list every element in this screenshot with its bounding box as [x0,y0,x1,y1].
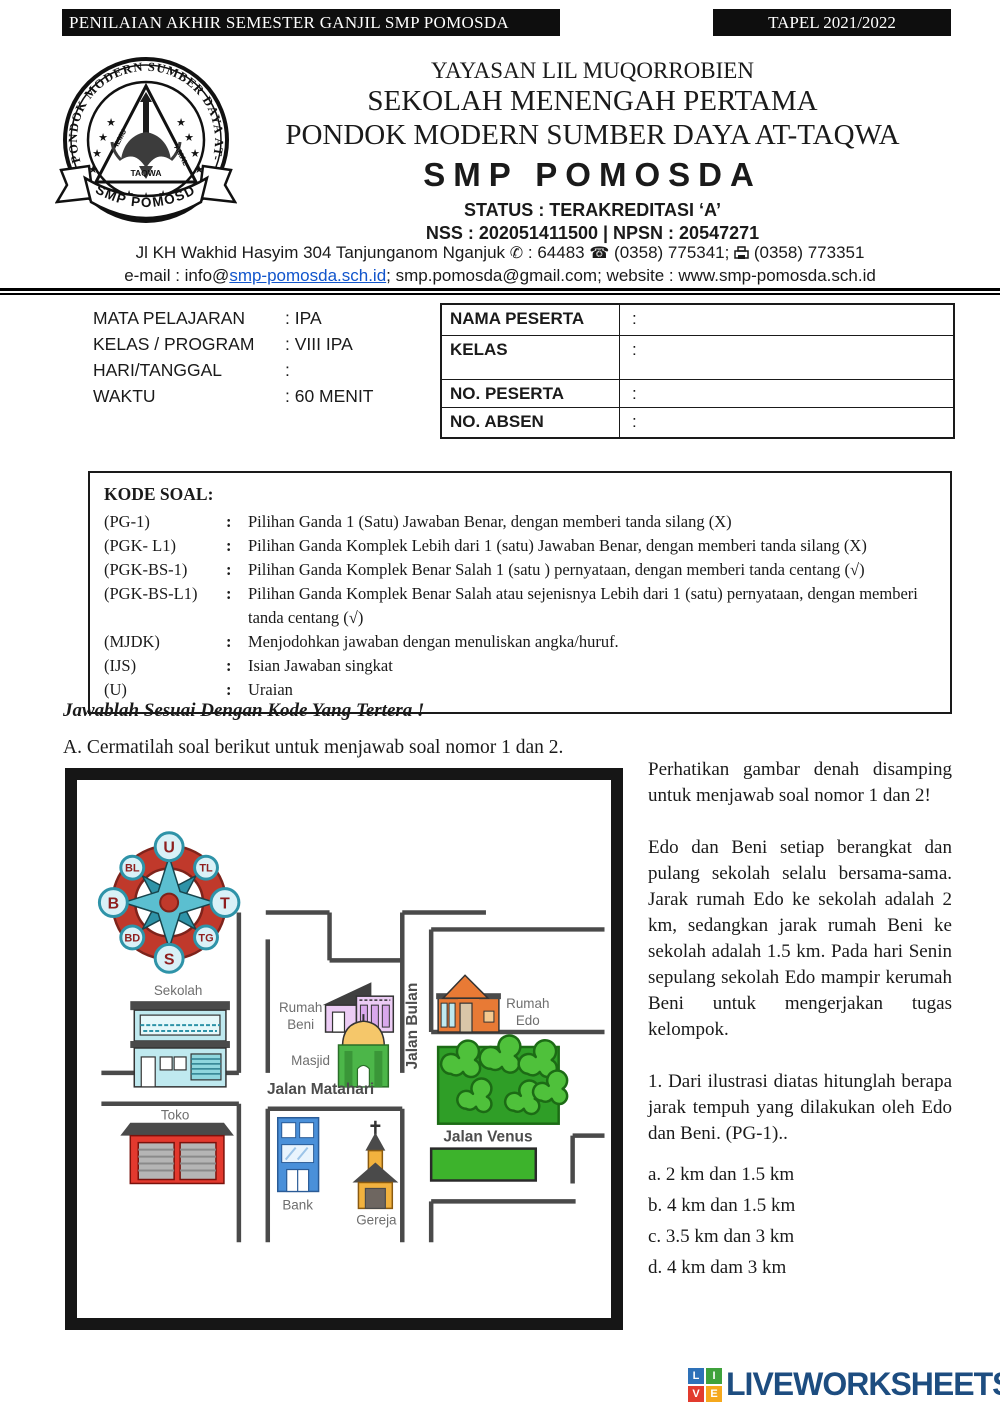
compass-rose-icon: U S B T BL TL BD TG [99,833,238,972]
compass-sw-label: BD [124,932,140,944]
compass-east-label: T [220,896,230,913]
school-year: TAPEL 2021/2022 [768,13,896,33]
bank-label: Bank [282,1197,313,1212]
option-c[interactable]: c. 3.5 km dan 3 km [648,1221,952,1252]
question-1: 1. Dari ilustrasi diatas hitunglah berap… [648,1069,952,1147]
option-b[interactable]: b. 4 km dan 1.5 km [648,1190,952,1221]
field-icon [431,1149,536,1181]
pondok-name: PONDOK MODERN SUMBER DAYA AT-TAQWA [235,118,950,153]
kode-soal-box: KODE SOAL: (PG-1):Pilihan Ganda 1 (Satu)… [88,471,952,714]
compass-nw-label: BL [125,863,140,875]
address-block: Jl KH Wakhid Hasyim 304 Tanjunganom Ngan… [0,241,1000,287]
shop-icon [120,1123,234,1184]
answer-instruction: Jawablah Sesuai Dengan Kode Yang Tertera… [63,700,424,722]
option-a[interactable]: a. 2 km dan 1.5 km [648,1159,952,1190]
jalan-matahari-label: Jalan Matahari [267,1081,374,1098]
letterhead-divider [0,288,1000,295]
kode-row: (PGK-BS-L1):Pilihan Ganda Komplek Benar … [104,582,936,630]
svg-text:★: ★ [176,117,186,129]
compass-west-label: B [108,896,120,913]
compass-north-label: U [163,840,175,857]
field-value-class[interactable]: : [619,335,953,379]
mosque-label: Masjid [291,1053,330,1068]
compass-south-label: S [164,951,175,968]
compass-se-label: TG [198,932,213,944]
field-value-name[interactable]: : [619,305,953,335]
liveworksheets-tiles-icon: L I V E [688,1368,722,1402]
field-label-class: KELAS [442,335,619,379]
denah-map: U S B T BL TL BD TG Sekolah [77,780,605,1312]
field-value-number[interactable]: : [619,379,953,407]
svg-text:★: ★ [92,148,102,160]
liveworksheets-logo: L I V E LIVEWORKSHEETS [688,1366,1000,1403]
kode-row: (MJDK):Menjodohkan jawaban dengan menuli… [104,630,936,654]
email-domain-link[interactable]: smp-pomosda.sch.id [229,266,386,285]
school-type: SEKOLAH MENENGAH PERTAMA [235,85,950,118]
kode-row: (PG-1):Pilihan Ganda 1 (Satu) Jawaban Be… [104,510,936,534]
option-d[interactable]: d. 4 km dam 3 km [648,1252,952,1283]
school-seal-logo: PONDOK MODERN SUMBER DAYA AT-TAQWA ILMU … [55,52,237,236]
church-label: Gereja [356,1212,397,1227]
kode-soal-title: KODE SOAL: [104,481,936,507]
kode-row: (PGK- L1):Pilihan Ganda Komplek Lebih da… [104,534,936,558]
svg-text:Beni: Beni [287,1017,314,1032]
seal-word-taqwa: TAQWA [130,168,161,178]
jalan-venus-label: Jalan Venus [443,1129,532,1146]
school-name: SMP POMOSDA [235,154,950,196]
edo-house-label: Rumah [506,996,549,1011]
liveworksheets-wordmark: LIVEWORKSHEETS [726,1366,1000,1403]
shop-label: Toko [161,1108,189,1123]
svg-text:★: ★ [98,132,108,144]
info-row-date: HARI/TANGGAL : [93,357,438,383]
telephone-icon: ☎ [589,243,609,262]
seal-icon: PONDOK MODERN SUMBER DAYA AT-TAQWA ILMU … [55,52,237,236]
address-line: Jl KH Wakhid Hasyim 304 Tanjunganom Ngan… [0,241,1000,264]
svg-text:★: ★ [190,148,200,160]
field-label-number: NO. PESERTA [442,379,619,407]
church-icon [352,1121,398,1209]
compass-ne-label: TL [199,863,213,875]
kode-row: (IJS):Isian Jawaban singkat [104,654,936,678]
foundation-name: YAYASAN LIL MUQORROBIEN [235,57,950,85]
problem-story: Edo dan Beni setiap berangkat dan pulang… [648,835,952,1043]
accreditation-status: STATUS : TERAKREDITASI ‘A’ [235,199,950,222]
park-icon [438,1036,567,1124]
school-year-bar: TAPEL 2021/2022 [713,9,951,36]
field-label-name: NAMA PESERTA [442,305,619,335]
problem-text-column: Perhatikan gambar denah disamping untuk … [648,757,952,1283]
kode-row: (U):Uraian [104,678,936,702]
edo-house-icon [436,975,501,1032]
school-label: Sekolah [154,983,203,998]
phone-icon: ✆ [510,243,523,262]
exam-info-left: MATA PELAJARAN : IPA KELAS / PROGRAM : V… [93,305,438,409]
letterhead: YAYASAN LIL MUQORROBIEN SEKOLAH MENENGAH… [235,57,950,245]
school-building-icon [130,1001,230,1087]
email-line: e-mail : info@smp-pomosda.sch.id; smp.po… [0,264,1000,287]
jalan-bulan-label: Jalan Bulan [404,983,421,1070]
section-a-heading: A. Cermatilah soal berikut untuk menjawa… [63,737,563,759]
info-row-duration: WAKTU : 60 MENIT [93,383,438,409]
bank-building-icon [278,1118,319,1192]
student-info-table: NAMA PESERTA : KELAS : NO. PESERTA : NO.… [440,303,955,439]
svg-text:★: ★ [106,117,116,129]
info-row-subject: MATA PELAJARAN : IPA [93,305,438,331]
beni-house-label: Rumah [279,1000,322,1015]
exam-title: PENILAIAN AKHIR SEMESTER GANJIL SMP POMO… [69,13,509,33]
field-value-absen[interactable]: : [619,407,953,437]
denah-map-figure: U S B T BL TL BD TG Sekolah [65,768,623,1330]
info-row-class: KELAS / PROGRAM : VIII IPA [93,331,438,357]
exam-title-bar: PENILAIAN AKHIR SEMESTER GANJIL SMP POMO… [62,9,560,36]
problem-intro: Perhatikan gambar denah disamping untuk … [648,757,952,809]
fax-icon [734,246,749,260]
svg-text:★: ★ [184,132,194,144]
field-label-absen: NO. ABSEN [442,407,619,437]
kode-row: (PGK-BS-1):Pilihan Ganda Komplek Benar S… [104,558,936,582]
svg-text:Edo: Edo [516,1013,540,1028]
